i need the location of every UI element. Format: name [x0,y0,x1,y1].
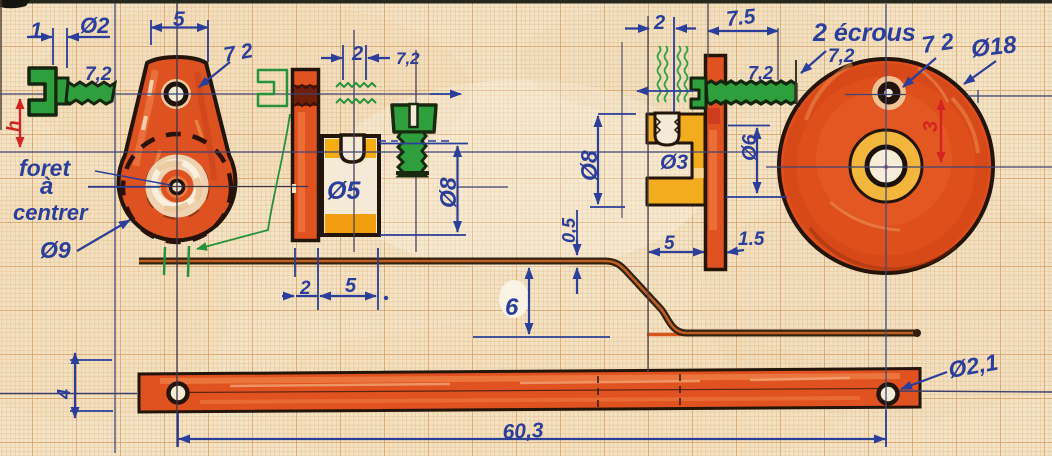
svg-text:4: 4 [54,389,74,400]
svg-text:3: 3 [920,121,942,132]
svg-text:60,3: 60,3 [502,419,544,444]
svg-text:Ø5: Ø5 [327,177,361,205]
svg-text:Ø8: Ø8 [576,150,602,181]
svg-text:7.5: 7.5 [725,5,757,31]
svg-text:7,2: 7,2 [748,63,773,83]
svg-text:0,5: 0,5 [559,217,579,243]
svg-text:1: 1 [30,18,42,43]
svg-text:7,2: 7,2 [828,46,855,67]
svg-text:Ø3: Ø3 [660,151,688,174]
svg-text:2: 2 [653,12,665,34]
svg-text:2 écrous: 2 écrous [812,19,916,47]
svg-text:7,2: 7,2 [396,49,420,68]
svg-text:1.5: 1.5 [738,229,765,250]
svg-text:5: 5 [173,8,185,31]
svg-text:Ø2: Ø2 [80,13,110,38]
svg-text:h: h [4,120,25,132]
svg-text:2: 2 [299,278,311,299]
svg-text:2: 2 [351,43,363,65]
svg-text:7 2: 7 2 [920,28,955,58]
svg-text:Ø18: Ø18 [970,31,1019,63]
svg-text:5: 5 [664,233,675,254]
svg-text:Ø8: Ø8 [435,177,461,208]
svg-text:centrer: centrer [13,200,89,225]
svg-text:à: à [40,173,53,200]
svg-text:5: 5 [345,275,357,297]
svg-text:7,2: 7,2 [85,64,112,85]
svg-text:Ø9: Ø9 [40,237,71,263]
svg-text:6: 6 [505,294,519,321]
svg-text:Ø6: Ø6 [739,133,761,161]
